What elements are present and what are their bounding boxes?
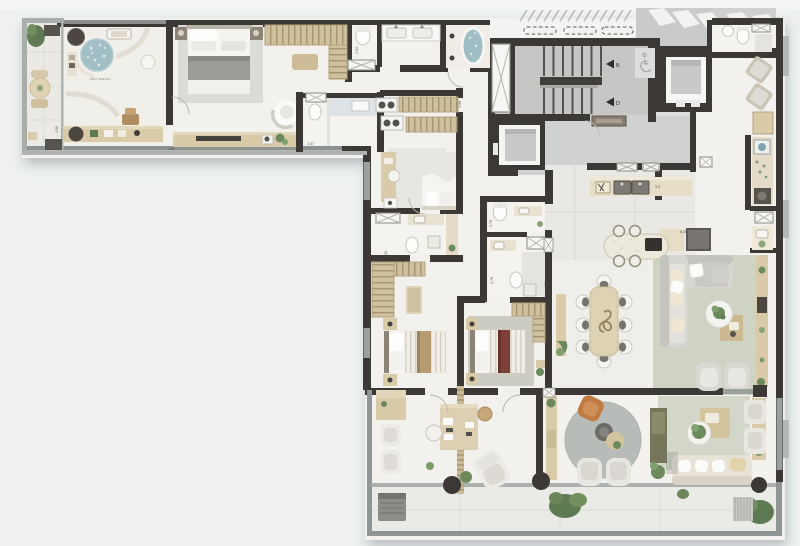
svg-text:4.85: 4.85 bbox=[168, 147, 175, 151]
svg-text:2.23: 2.23 bbox=[544, 282, 548, 289]
svg-text:4.91: 4.91 bbox=[355, 47, 359, 54]
svg-text:4.65: 4.65 bbox=[345, 147, 352, 151]
svg-text:4.50: 4.50 bbox=[55, 126, 59, 133]
svg-text:3.5: 3.5 bbox=[655, 185, 660, 189]
svg-text:2.33: 2.33 bbox=[384, 251, 388, 258]
svg-text:PISO VINILICO: PISO VINILICO bbox=[90, 77, 112, 81]
svg-text:1.90: 1.90 bbox=[458, 101, 462, 108]
svg-text:6.35: 6.35 bbox=[680, 230, 687, 234]
svg-text:B: B bbox=[616, 63, 620, 69]
svg-text:D: D bbox=[616, 101, 620, 107]
svg-text:5.61: 5.61 bbox=[378, 119, 382, 126]
svg-text:1.70: 1.70 bbox=[490, 277, 494, 284]
svg-text:2.57: 2.57 bbox=[307, 142, 314, 146]
svg-text:1.76: 1.76 bbox=[489, 220, 493, 227]
